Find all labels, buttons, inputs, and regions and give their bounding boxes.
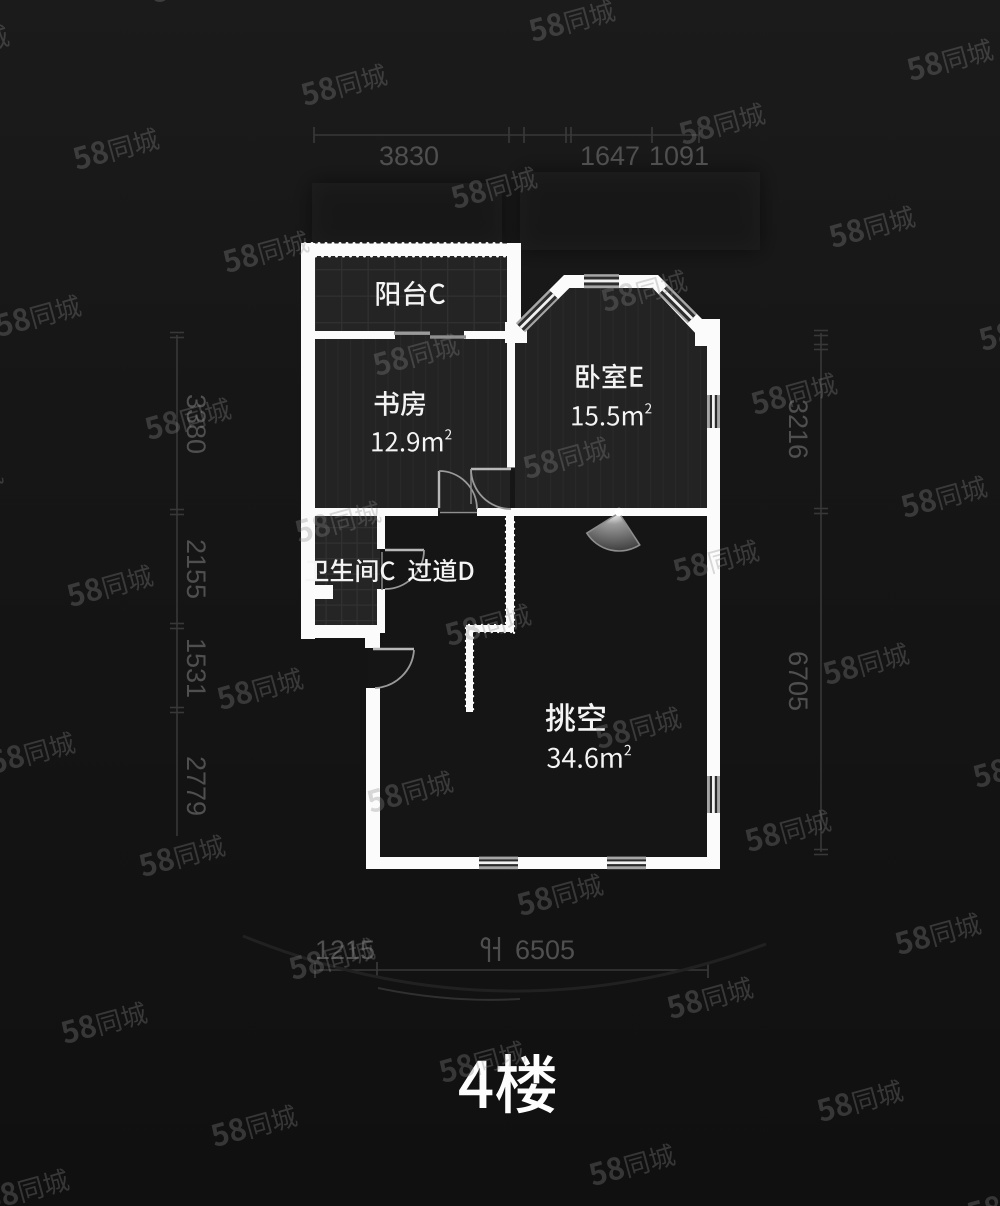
svg-text:2155: 2155 (181, 539, 211, 599)
svg-text:1647: 1647 (580, 141, 640, 171)
svg-text:1091: 1091 (649, 141, 709, 171)
svg-text:2779: 2779 (181, 756, 211, 816)
svg-text:1531: 1531 (181, 638, 211, 698)
svg-text:3216: 3216 (783, 399, 813, 459)
svg-text:6505: 6505 (515, 935, 575, 965)
svg-text:6705: 6705 (783, 651, 813, 711)
svg-text:3830: 3830 (379, 141, 439, 171)
